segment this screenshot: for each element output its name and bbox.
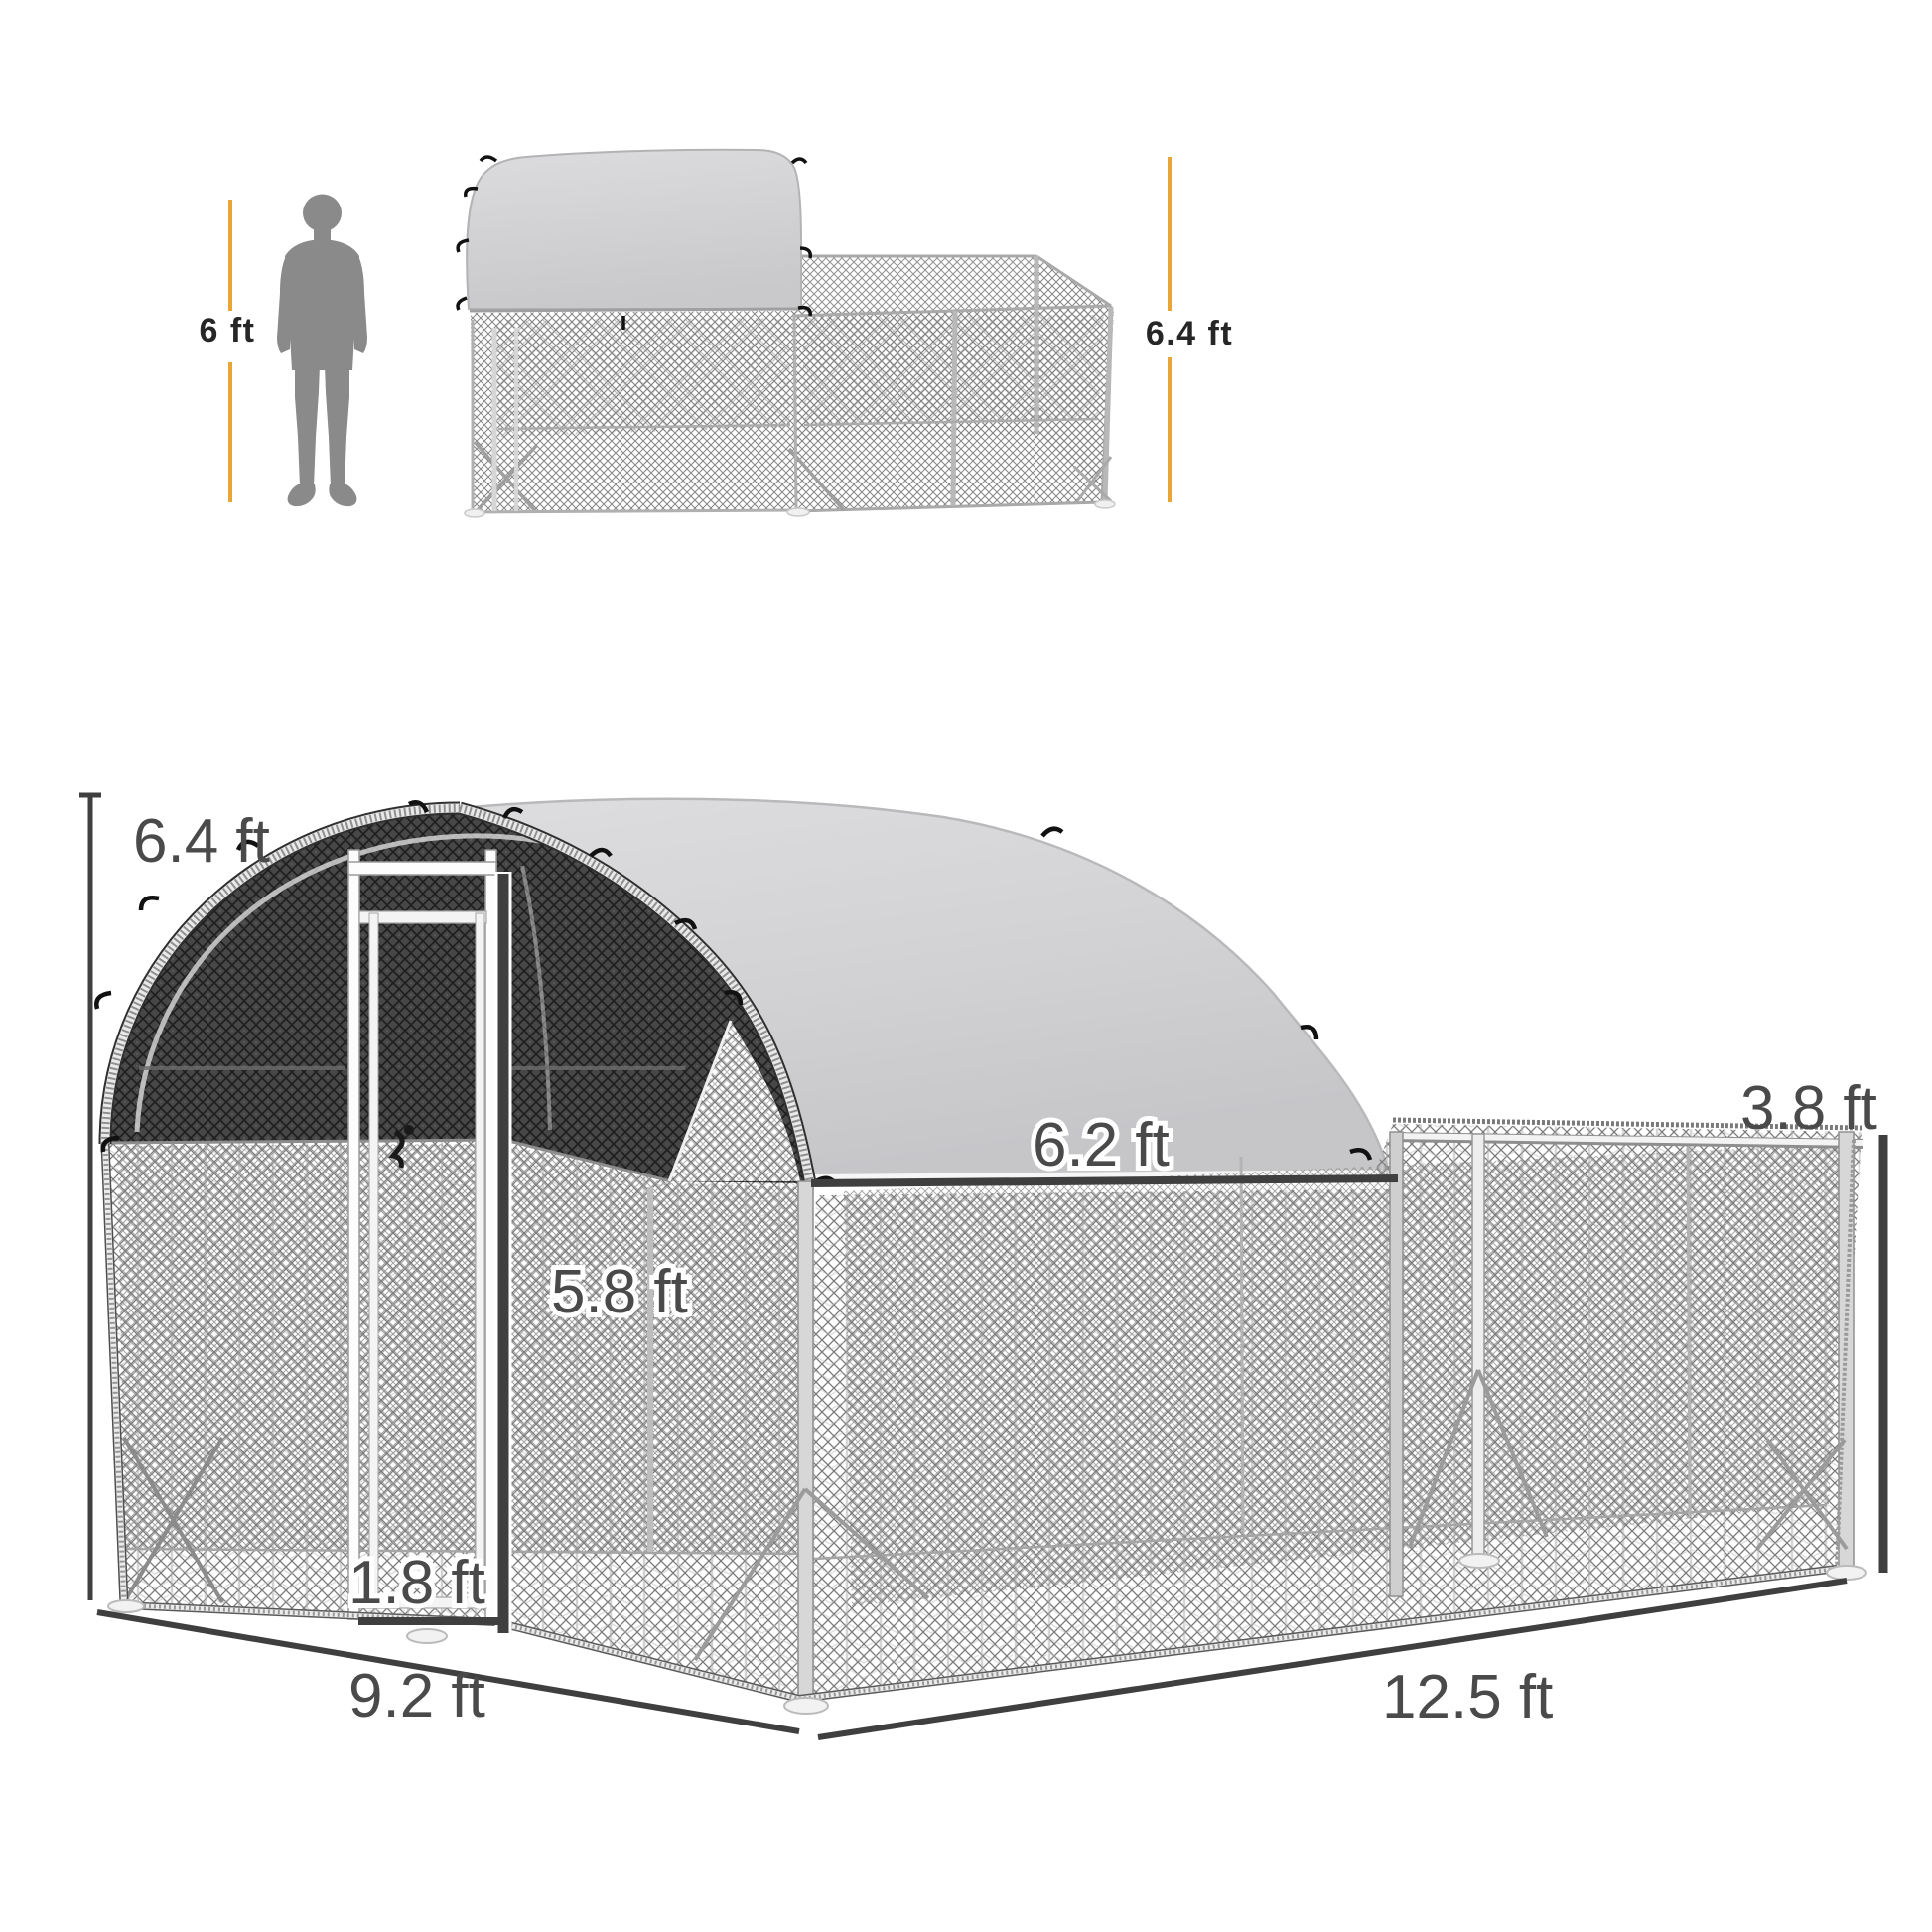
svg-text:1.8 ft: 1.8 ft [348,1549,485,1617]
svg-text:6.4 ft: 6.4 ft [133,807,270,876]
svg-text:12.5 ft: 12.5 ft [1382,1663,1553,1731]
svg-text:3.8 ft: 3.8 ft [1740,1074,1877,1143]
svg-text:9.2 ft: 9.2 ft [348,1662,485,1730]
svg-text:6.2 ft: 6.2 ft [1033,1111,1170,1179]
svg-text:6.4 ft: 6.4 ft [1146,315,1233,352]
svg-text:5.8 ft: 5.8 ft [551,1258,688,1326]
svg-text:6 ft: 6 ft [200,312,256,349]
